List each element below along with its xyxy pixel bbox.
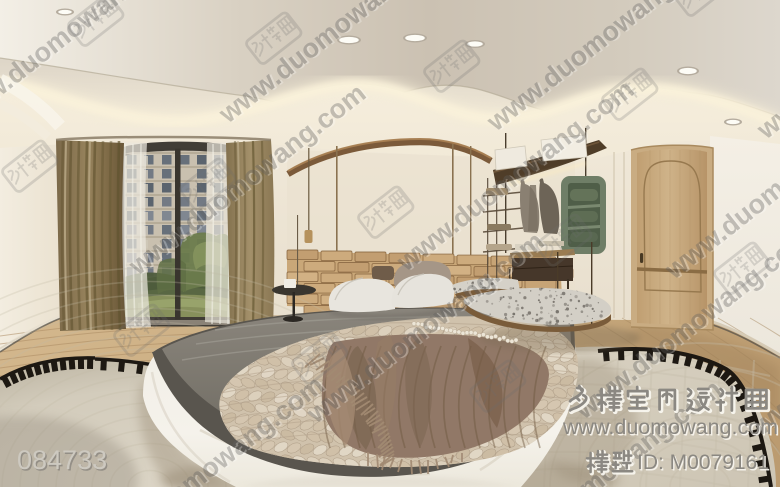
svg-text:ID: M0079161: ID: M0079161 (637, 451, 769, 474)
svg-text:084733: 084733 (17, 445, 107, 475)
svg-text:www.duomowang.com: www.duomowang.com (562, 415, 778, 439)
